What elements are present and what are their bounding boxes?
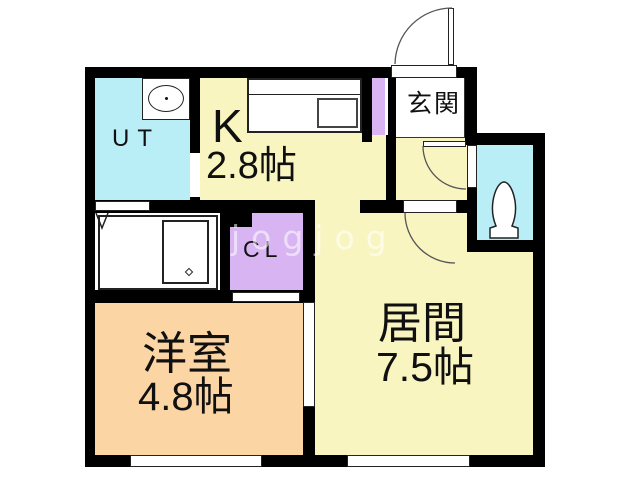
label-living-size: 7.5帖: [376, 347, 474, 388]
label-kitchen: K: [212, 103, 243, 149]
bathtub-icon: [162, 220, 209, 284]
wall-right: [533, 133, 545, 467]
floor-plan: UT K 2.8帖 玄関 CL 洋室 4.8帖 居間 7.5帖 jogjog: [0, 0, 640, 480]
label-western: 洋室: [142, 331, 232, 376]
living-window: [347, 455, 470, 467]
wall-kitchen-right: [362, 67, 372, 142]
room-toilet-floor: [477, 145, 533, 240]
kitchen-counter: [247, 78, 362, 133]
hall-door-leaf: [423, 141, 466, 147]
counter-edge: [249, 80, 360, 95]
western-window: [130, 455, 262, 467]
washbasin-drain: [165, 97, 168, 100]
label-living: 居間: [378, 302, 466, 346]
entrance-door-opening: [391, 65, 457, 78]
entrance-shoe-closet: [372, 78, 385, 135]
wall-top: [85, 67, 391, 78]
washbasin-unit: [142, 78, 190, 120]
wall-toilet-bottom: [467, 240, 543, 252]
kitchen-sink-icon: [317, 98, 358, 128]
living-door-opening: [403, 200, 457, 213]
ut-bath-door-opening: [95, 201, 150, 211]
label-kitchen-size: 2.8帖: [206, 147, 297, 185]
shoe-closet-gap: [385, 78, 388, 135]
hallway-floor: [396, 138, 467, 202]
western-living-opening: [303, 302, 315, 407]
label-entrance: 玄関: [407, 92, 461, 117]
closet-door: [232, 292, 300, 302]
ut-kitchen-door-opening: [190, 153, 200, 197]
toilet-door-opening: [467, 145, 477, 188]
wall-left: [85, 67, 95, 467]
label-ut: UT: [112, 127, 160, 151]
wall-western-living: [303, 407, 315, 467]
bathtub-unit: [98, 215, 218, 290]
watermark: jogjog: [231, 221, 398, 254]
label-western-size: 4.8帖: [138, 377, 234, 417]
entrance-door-arc: [395, 8, 452, 64]
entrance-door-leaf: [448, 8, 454, 65]
